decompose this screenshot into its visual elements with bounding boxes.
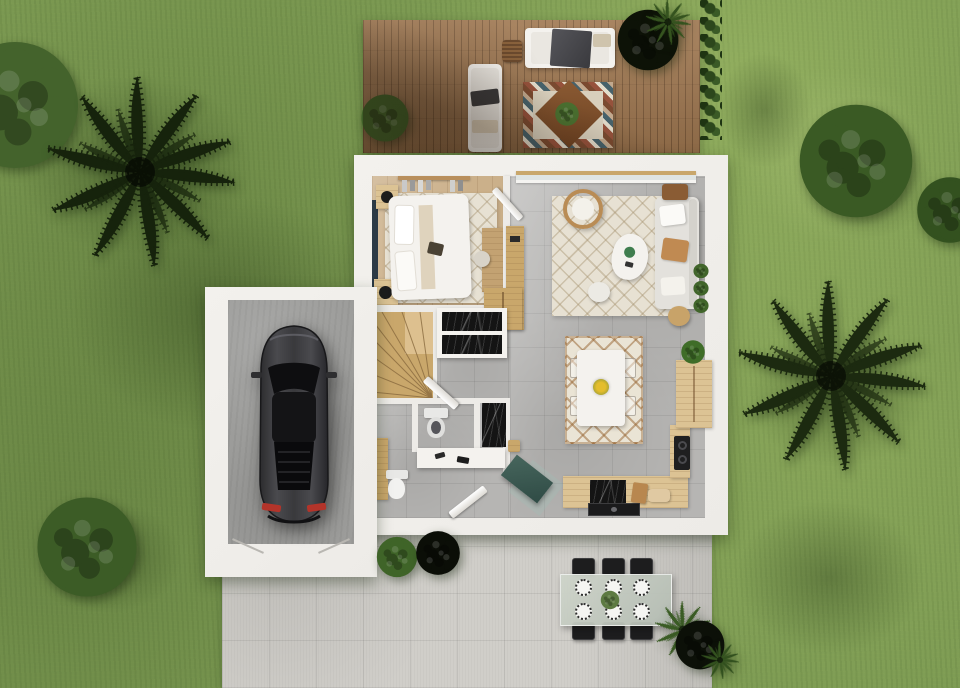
bathroom-wall [412,404,418,452]
garage [205,287,377,577]
vanity-faucet [457,456,470,464]
rattan-lantern [502,40,522,62]
cutting-board [631,482,649,504]
palm-tree-top-left [40,72,240,272]
flower-centerpiece [593,379,609,395]
small-bush-right-edge [911,171,960,249]
vanity-faucet [435,452,446,459]
toilet-2 [386,470,408,502]
tan-pouf [668,306,690,326]
hanging-rattan-chair [563,189,603,229]
entry-stool [508,440,520,452]
place-setting [633,603,650,620]
round-bush-top-right [789,94,923,228]
vanity-counter [417,448,505,468]
sofa-pillow [660,276,685,296]
rug-center-plant [553,100,581,128]
deck-rug [523,82,613,148]
dark-throw-blanket [550,29,592,69]
marble-wardrobe [437,308,507,358]
plant-beside-sofa [692,245,710,297]
table-centerpiece-plant [597,589,623,611]
floorplan-scene [0,0,960,688]
side-table [662,184,688,200]
deck [363,20,700,153]
deck-fern-plant [644,0,692,46]
bed-pillow [394,205,415,245]
car-roof [272,392,316,444]
deck-sofa [525,28,615,68]
place-setting [633,579,650,596]
dining-table [577,350,625,426]
sofa-pillow-tan [661,237,690,262]
car-rear-window [274,442,314,490]
deck-potted-plant-green [357,90,413,146]
deck-chaise-lounge [468,64,502,152]
kitchen-sink [588,503,640,516]
car [248,320,340,530]
table-lamp [379,286,392,299]
place-setting [575,579,592,596]
cooktop [674,436,690,470]
wardrobe-shelf [442,335,502,354]
wardrobe-shelf [442,312,502,331]
house [354,155,728,535]
beige-pillow [593,34,611,47]
place-setting [575,603,592,620]
white-pouf [588,282,610,302]
beige-pillow [472,120,498,133]
hedge [700,0,722,140]
kitchen-plant [678,338,708,366]
corner-plant-small [700,640,740,680]
car-mirror [251,372,262,378]
bread-basket [648,489,670,502]
table-decor-green [623,246,636,259]
clothes-rack [398,176,470,192]
sliding-glass-door [516,171,696,183]
car-mirror [326,372,337,378]
patio-plant-black-leaf [412,527,464,579]
sofa-pillow [659,204,686,227]
round-bush-bottom-left [28,488,146,606]
shower [480,403,506,447]
desk-chair [474,251,490,267]
toilet [424,408,448,440]
palm-tree-right [731,276,931,476]
double-bed [388,194,472,301]
bed-pillow [394,250,417,292]
kitchen-tall-cabinet [676,360,712,428]
